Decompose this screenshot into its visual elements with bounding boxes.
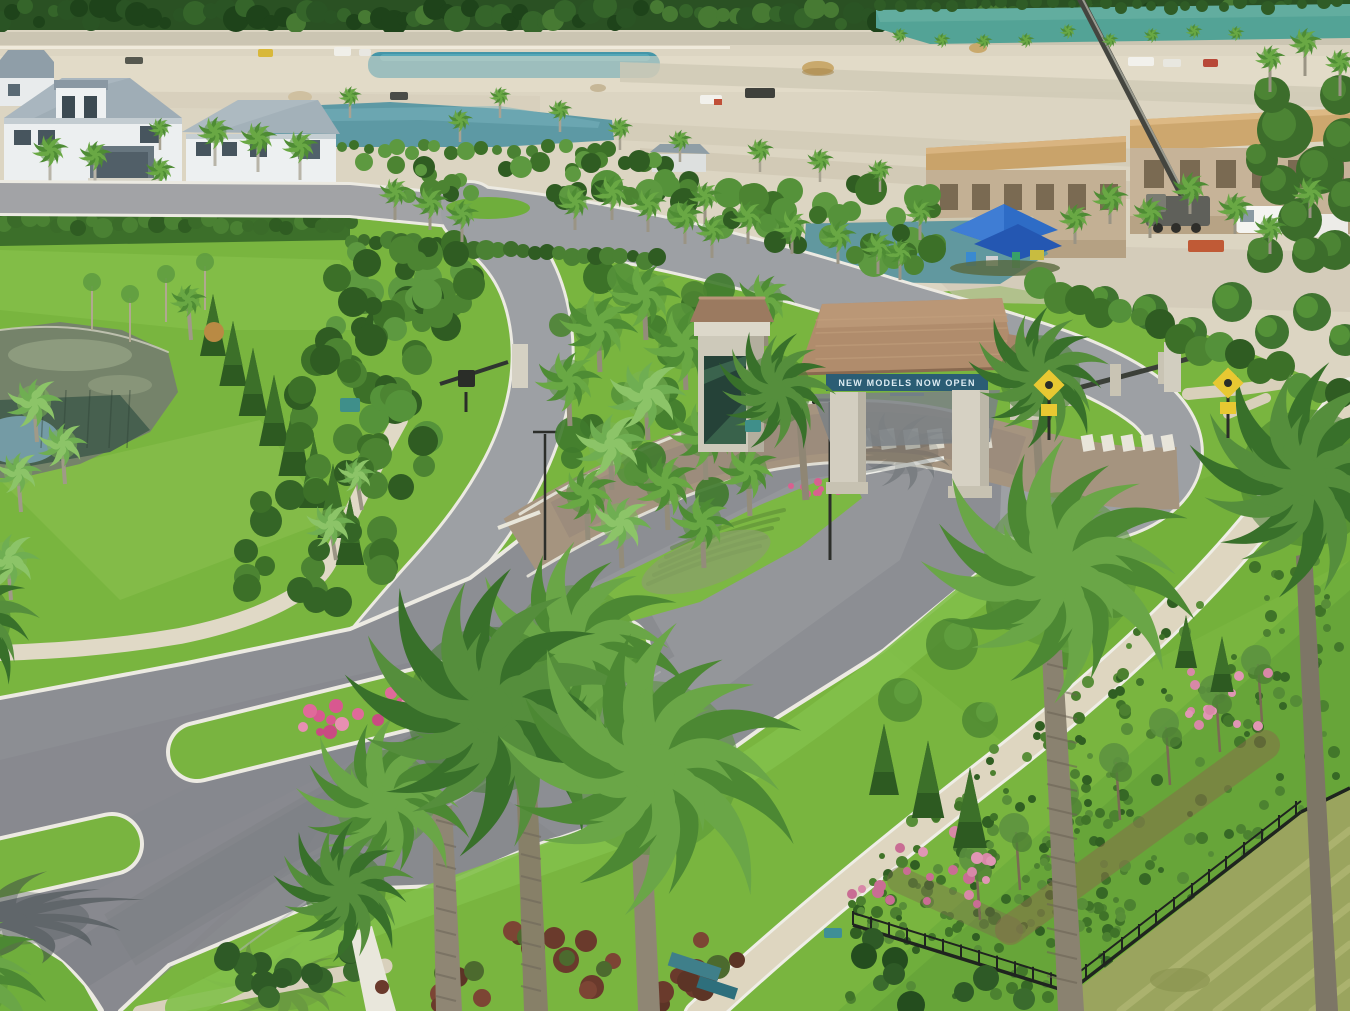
svg-text:NEW MODELS NOW OPEN: NEW MODELS NOW OPEN xyxy=(838,378,975,388)
